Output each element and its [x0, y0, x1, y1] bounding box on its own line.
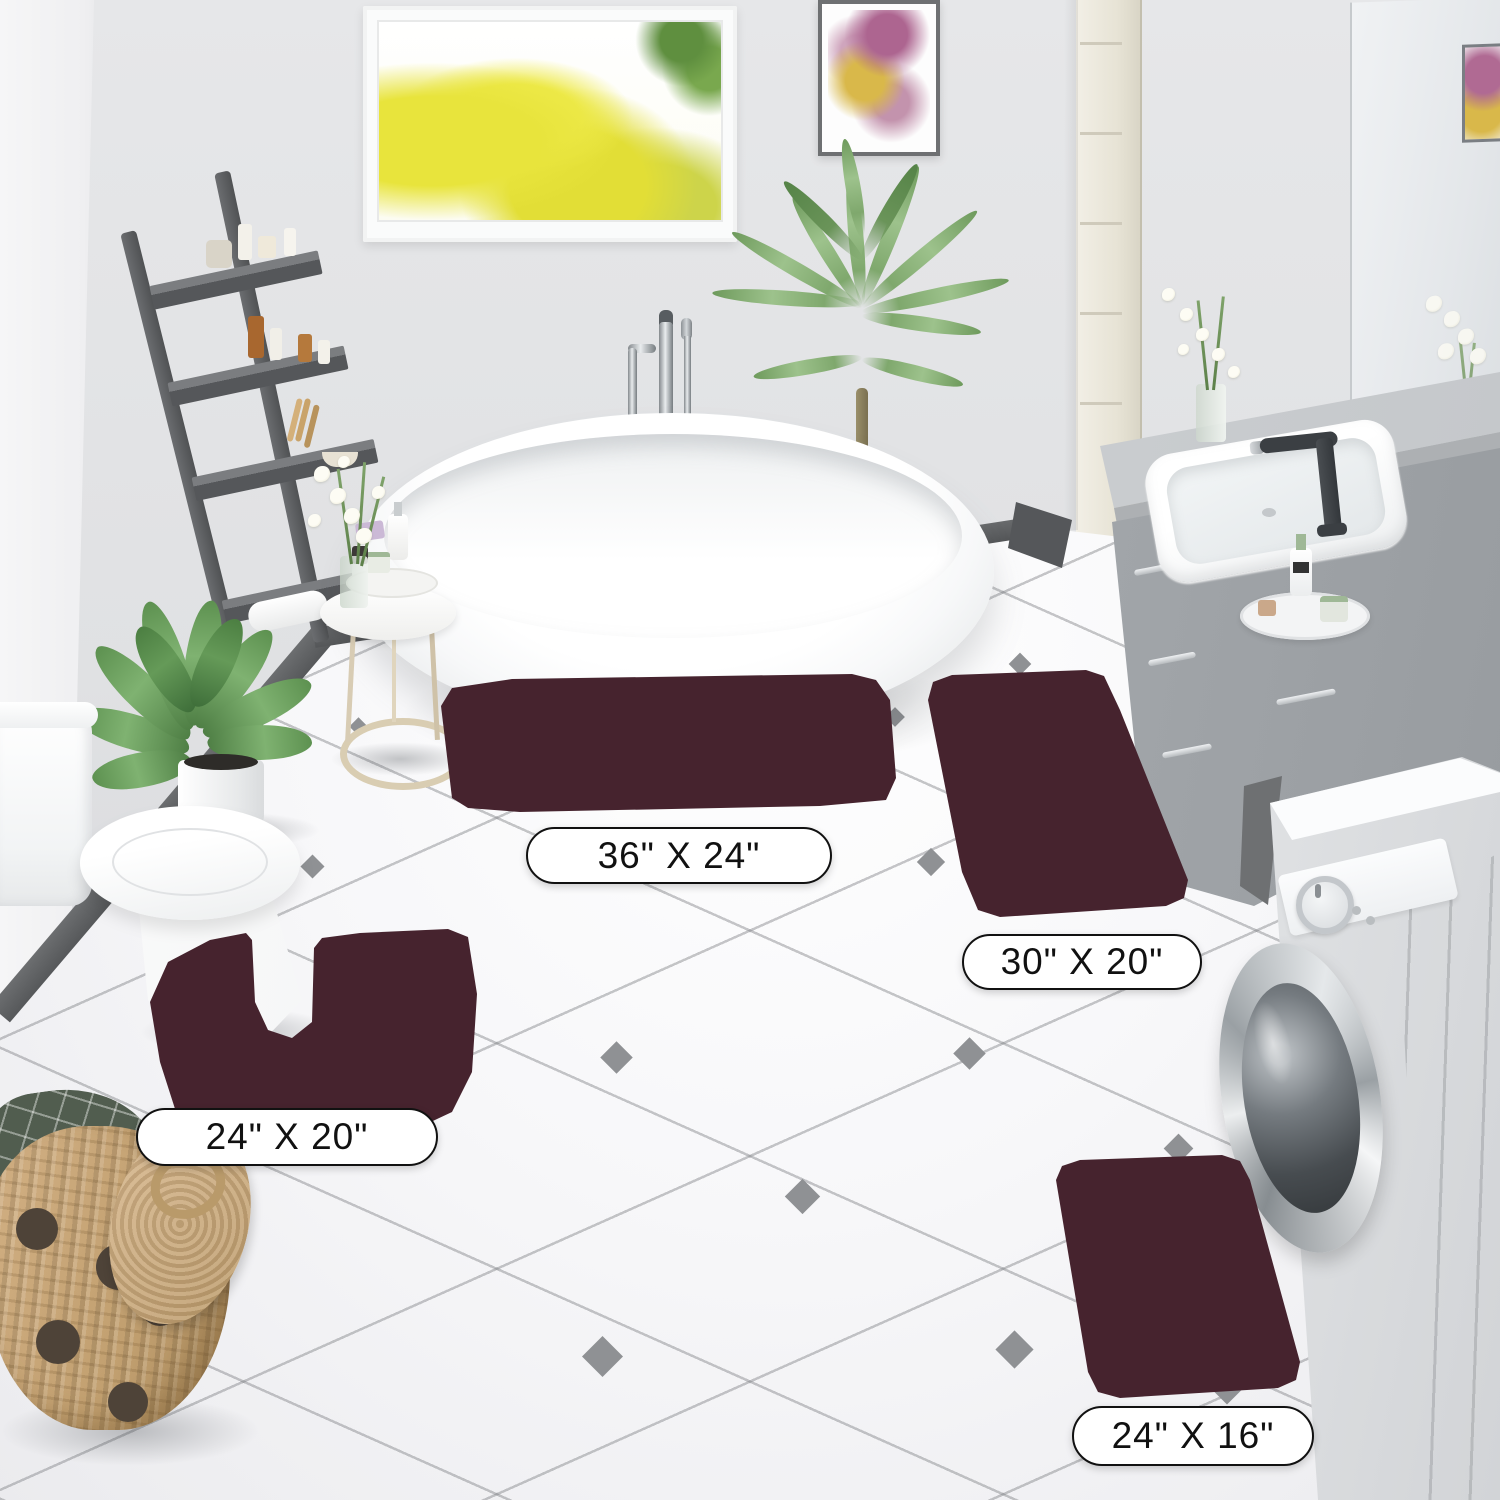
toiletry-bottle	[270, 328, 282, 360]
toiletry-bottle	[284, 228, 296, 256]
table-vase	[340, 556, 368, 608]
wall-corner-shade	[1064, 0, 1078, 530]
size-label-text: 24" X 16"	[1112, 1415, 1275, 1457]
washer-dial-marker	[1315, 884, 1321, 898]
tub-rim	[384, 434, 962, 638]
cosmetic-bottle	[388, 514, 408, 560]
cosmetic-pump	[394, 502, 402, 516]
toiletry-bottle	[258, 236, 276, 258]
soap-label	[1293, 562, 1309, 573]
toiletry-bottle	[238, 224, 252, 260]
tray-jar	[1320, 596, 1348, 622]
vanity-faucet	[1249, 423, 1370, 544]
cosmetic-jar	[366, 552, 390, 573]
toilet-tank-lid	[0, 702, 98, 728]
toiletry-bottle	[298, 334, 312, 362]
mirror-art-reflection	[1462, 43, 1500, 143]
window	[363, 6, 737, 242]
toiletry-brushes	[295, 398, 311, 442]
plant-pot-pebbles	[184, 754, 258, 770]
washer-dial	[1296, 876, 1354, 934]
toiletry-bottle	[248, 316, 264, 358]
size-label-text: 30" X 20"	[1001, 941, 1164, 983]
size-label-36x24: 36" X 24"	[526, 827, 832, 884]
tray-jar-small	[1258, 600, 1276, 616]
size-label-30x20: 30" X 20"	[962, 934, 1202, 990]
toiletry-bottle	[318, 340, 330, 364]
washer-button	[1366, 916, 1375, 925]
wall-art-abstract	[828, 10, 930, 146]
size-label-24x16: 24" X 16"	[1072, 1406, 1314, 1466]
bathroom-scene: 36" X 24" 30" X 20" 24" X 20" 24" X 16"	[0, 0, 1500, 1500]
soap-pump	[1296, 534, 1306, 550]
toiletry-bottle	[206, 240, 232, 268]
size-label-text: 24" X 20"	[206, 1116, 369, 1158]
wall-art	[818, 0, 940, 156]
size-label-text: 36" X 24"	[598, 835, 761, 877]
toilet-tank	[0, 710, 92, 906]
size-label-24x20: 24" X 20"	[136, 1108, 438, 1166]
counter-vase	[1196, 384, 1226, 442]
washer-button	[1352, 906, 1361, 915]
toilet-seat-line	[112, 828, 268, 896]
window-view	[377, 20, 723, 222]
